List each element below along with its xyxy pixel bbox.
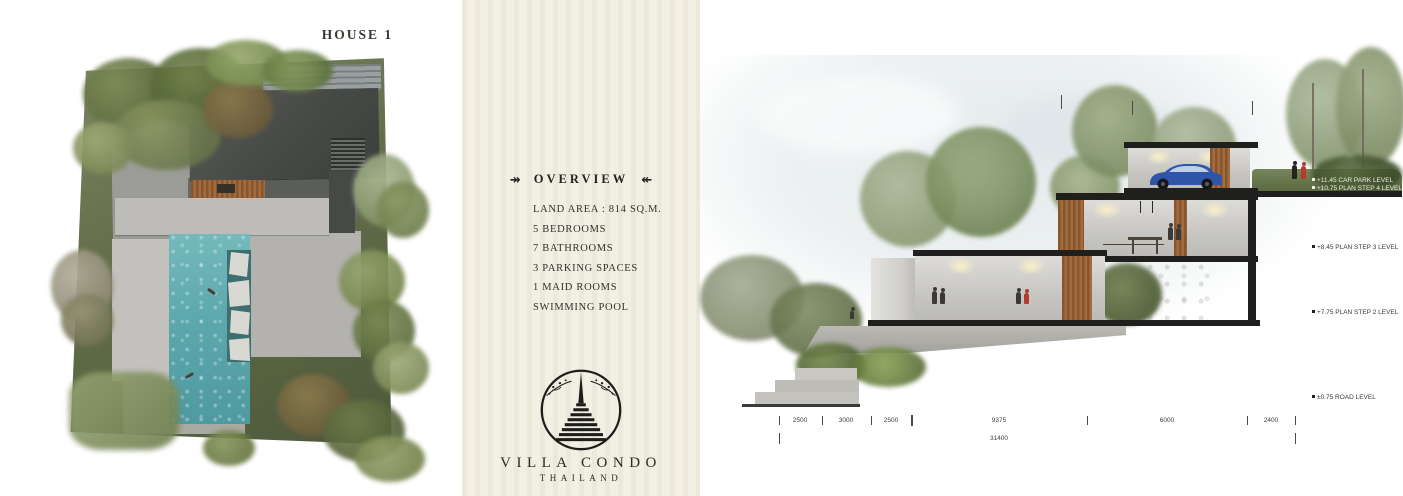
- spec-bathrooms: 7 BATHROOMS: [533, 243, 693, 254]
- dim-value: 3000: [839, 417, 853, 424]
- spec-swimming-pool: SWIMMING POOL: [533, 302, 693, 313]
- level-annotation: +7.75 PLAN STEP 2 LEVEL: [1312, 309, 1398, 316]
- spec-maid-rooms: 1 MAID ROOMS: [533, 282, 693, 293]
- end-wall: [871, 258, 915, 320]
- level-marker-icon: [1312, 310, 1315, 313]
- level-marker-icon: [1312, 178, 1315, 181]
- dim-tick: [1247, 416, 1248, 425]
- dim-value: 2500: [884, 417, 898, 424]
- lower-wood-panel: [1062, 256, 1092, 320]
- ceiling-light: [1200, 201, 1230, 219]
- tree-blob-brown: [203, 80, 273, 138]
- living-roof-slab: [1056, 193, 1258, 200]
- leader-tick: [1132, 101, 1133, 115]
- person: [932, 291, 937, 304]
- level-annotation: +8.45 PLAN STEP 3 LEVEL: [1312, 244, 1398, 251]
- level-label: +10.75 PLAN STEP 4 LEVEL: [1317, 185, 1402, 192]
- roof-slab-light: [115, 198, 329, 235]
- dim-value: 2400: [1264, 417, 1278, 424]
- person: [1176, 228, 1181, 240]
- page-title: HOUSE 1: [295, 27, 420, 43]
- ceiling-light: [946, 257, 976, 275]
- villa-brochure-page: HOUSE 1: [0, 0, 1403, 496]
- stupa-logo-icon: [523, 365, 639, 453]
- deck-table: [217, 184, 235, 193]
- person-woman-red-dress: [1301, 166, 1306, 179]
- level-marker-icon: [1312, 395, 1315, 398]
- arrow-right-icon: ↠: [510, 173, 521, 188]
- site-plan: [55, 42, 453, 490]
- table-legs: [1132, 240, 1134, 254]
- tree-blob: [73, 122, 133, 174]
- living-wood-wall: [1058, 198, 1084, 258]
- tree-blob: [926, 127, 1036, 237]
- ceiling-light: [1016, 257, 1046, 275]
- ceiling-light: [1092, 201, 1122, 219]
- slope-vegetation: [850, 347, 926, 387]
- level-label: ±0.75 ROAD LEVEL: [1317, 394, 1376, 401]
- brand-logo: [462, 365, 700, 458]
- section-drawing: +11.45 CAR PARK LEVEL +10.75 PLAN STEP 4…: [700, 55, 1403, 475]
- level-annotation: +10.75 PLAN STEP 4 LEVEL: [1312, 185, 1402, 192]
- dim-value: 6000: [1160, 417, 1174, 424]
- cloud: [760, 75, 960, 155]
- dim-tick: [779, 416, 780, 425]
- tree-blob: [355, 436, 425, 482]
- dim-tick: [779, 433, 780, 444]
- car-icon: [1148, 160, 1224, 191]
- dim-value: 2500: [793, 417, 807, 424]
- person: [940, 292, 945, 304]
- roof-piece-dark: [329, 171, 355, 233]
- tree-blob: [373, 342, 429, 394]
- dim-tick: [1087, 416, 1088, 425]
- tree-blob: [61, 294, 113, 346]
- stepping-stone: [230, 310, 250, 335]
- level-marker-icon: [1312, 245, 1315, 248]
- level-annotation: +11.45 CAR PARK LEVEL: [1312, 177, 1393, 184]
- tree-blob: [1096, 269, 1158, 323]
- dim-value: 9375: [992, 417, 1006, 424]
- stepping-stone: [229, 338, 250, 361]
- lower-floor-slab: [868, 320, 1260, 326]
- spec-parking: 3 PARKING SPACES: [533, 263, 693, 274]
- stepping-stone: [228, 280, 250, 307]
- person: [1168, 227, 1173, 240]
- dim-tick: [1295, 433, 1296, 444]
- level-label: +7.75 PLAN STEP 2 LEVEL: [1317, 309, 1398, 316]
- road-line: [742, 404, 860, 407]
- person: [1016, 292, 1021, 304]
- person-man: [1292, 165, 1297, 179]
- level-label: +8.45 PLAN STEP 3 LEVEL: [1317, 244, 1398, 251]
- pool-deck: [112, 239, 170, 381]
- spec-bedrooms: 5 BEDROOMS: [533, 224, 693, 235]
- tree-blob: [203, 430, 255, 466]
- level-label: +11.45 CAR PARK LEVEL: [1317, 177, 1393, 184]
- pendant-lamp: [1152, 201, 1153, 213]
- person-child: [850, 311, 854, 319]
- dim-tick: [871, 416, 872, 425]
- spec-land-area: LAND AREA : 814 SQ.M.: [533, 204, 693, 215]
- lower-roof-slab: [913, 250, 1107, 256]
- spec-list: LAND AREA : 814 SQ.M. 5 BEDROOMS 7 BATHR…: [533, 204, 693, 322]
- dim-tick: [822, 416, 823, 425]
- terrain-step: [795, 368, 857, 380]
- brand-country: THAILAND: [462, 473, 700, 483]
- leader-tick: [1061, 95, 1062, 109]
- dim-tick: [1295, 416, 1296, 425]
- tree-blob: [377, 182, 429, 238]
- level-marker-icon: [1312, 186, 1315, 189]
- right-wall: [1248, 193, 1256, 320]
- person-with-red-bag: [1024, 293, 1029, 304]
- pendant-lamp: [1140, 201, 1141, 213]
- brand-name: VILLA CONDO: [462, 455, 700, 472]
- dim-tick: [911, 415, 913, 426]
- level-annotation: ±0.75 ROAD LEVEL: [1312, 394, 1376, 401]
- stepping-stone: [229, 252, 249, 277]
- lawn: [69, 372, 179, 450]
- terrain-step: [775, 380, 859, 392]
- tree-blob: [263, 50, 333, 92]
- terrain-step: [755, 392, 859, 404]
- dim-total: 31400: [990, 435, 1008, 442]
- tree-blob: [1336, 47, 1403, 167]
- overview-heading-text: OVERVIEW: [534, 172, 628, 186]
- overview-heading: ↠ OVERVIEW ↞: [462, 172, 700, 188]
- leader-tick: [1252, 101, 1253, 115]
- carport-roof-slab: [1124, 142, 1258, 148]
- arrow-left-icon: ↞: [641, 173, 652, 188]
